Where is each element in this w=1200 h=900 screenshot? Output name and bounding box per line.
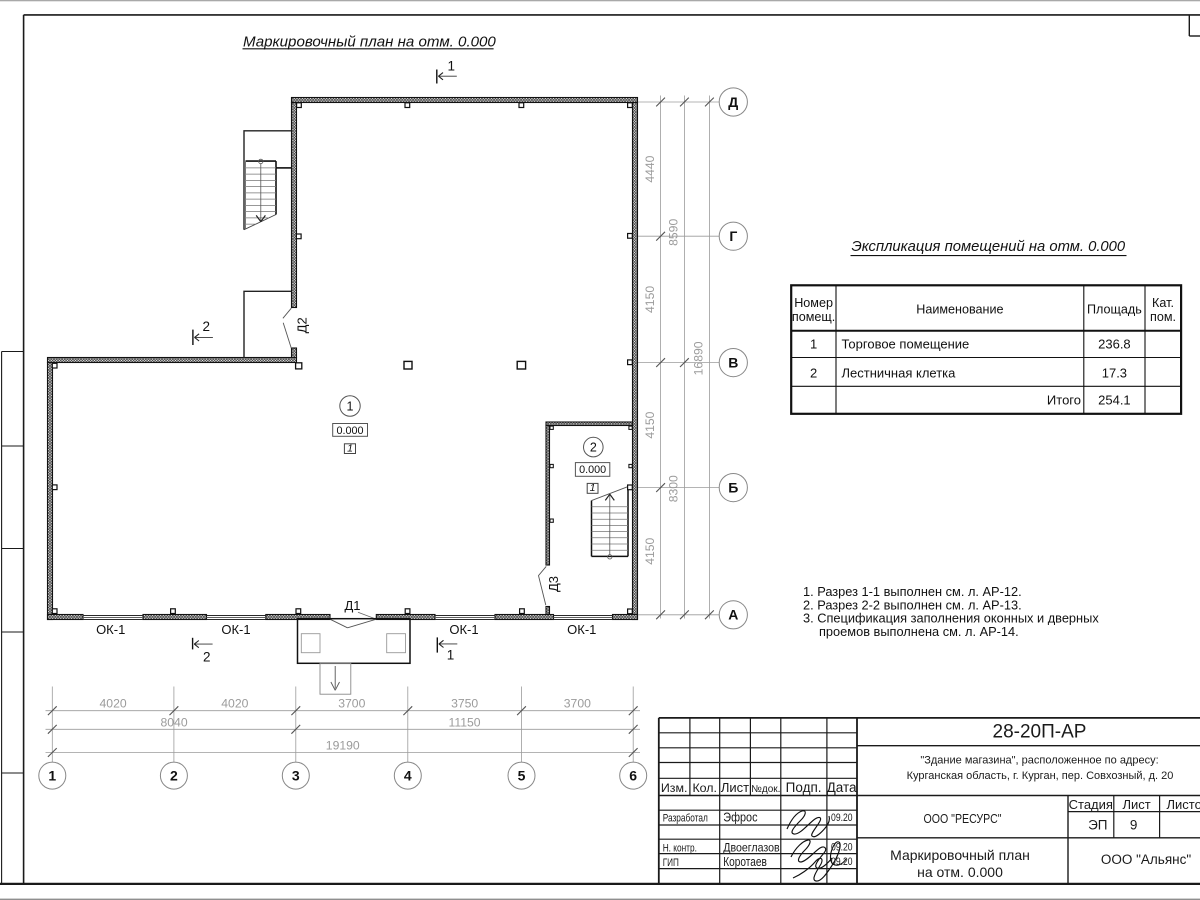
svg-text:Лист: Лист: [1122, 797, 1150, 812]
svg-text:Д2: Д2: [295, 317, 310, 333]
svg-text:Итого: Итого: [1047, 393, 1081, 408]
svg-text:ООО "РЕСУРС": ООО "РЕСУРС": [924, 811, 1002, 826]
svg-text:2: 2: [203, 650, 211, 665]
svg-text:№док.: №док.: [751, 784, 780, 795]
svg-text:1: 1: [810, 337, 817, 352]
svg-text:Двоеглазов: Двоеглазов: [723, 841, 780, 855]
svg-text:2: 2: [590, 441, 597, 455]
svg-text:Д: Д: [728, 94, 738, 110]
svg-text:Кат.: Кат.: [1152, 296, 1174, 310]
svg-text:2: 2: [810, 365, 817, 380]
svg-text:4150: 4150: [643, 411, 657, 438]
svg-text:254.1: 254.1: [1098, 393, 1131, 408]
svg-text:Курганская область, г. Курган,: Курганская область, г. Курган, пер. Совх…: [907, 770, 1174, 782]
svg-text:Д3: Д3: [546, 576, 561, 592]
svg-text:0.000: 0.000: [336, 425, 363, 437]
svg-text:Лист: Лист: [721, 780, 749, 795]
svg-text:Маркировочный план на отм. 0.0: Маркировочный план на отм. 0.000: [243, 34, 496, 51]
svg-text:пом.: пом.: [1150, 310, 1176, 324]
svg-text:ОК-1: ОК-1: [449, 622, 478, 637]
svg-text:8590: 8590: [667, 219, 681, 246]
svg-text:1: 1: [447, 648, 455, 663]
svg-text:на отм. 0.000: на отм. 0.000: [917, 864, 1003, 880]
svg-text:09.20: 09.20: [831, 812, 853, 824]
svg-text:Торговое помещение: Торговое помещение: [842, 337, 970, 352]
svg-text:8300: 8300: [667, 475, 681, 502]
svg-text:ЭП: ЭП: [1088, 817, 1107, 832]
svg-text:3: 3: [292, 767, 300, 783]
svg-text:1: 1: [48, 767, 56, 783]
svg-text:Дата: Дата: [827, 780, 857, 795]
svg-text:17.3: 17.3: [1102, 365, 1127, 380]
svg-text:проемов выполнена см. л. АР-14: проемов выполнена см. л. АР-14.: [819, 624, 1019, 639]
svg-text:Стадия: Стадия: [1069, 797, 1113, 812]
svg-text:Площадь: Площадь: [1087, 303, 1142, 317]
svg-text:19190: 19190: [326, 739, 360, 753]
svg-text:3700: 3700: [564, 697, 591, 711]
svg-text:6: 6: [629, 767, 637, 783]
svg-text:Кол.: Кол.: [692, 781, 717, 795]
svg-text:09.20: 09.20: [831, 842, 853, 854]
svg-text:4150: 4150: [643, 286, 657, 313]
svg-text:ОК-1: ОК-1: [221, 622, 250, 637]
svg-text:2: 2: [203, 319, 211, 334]
svg-text:3750: 3750: [451, 697, 478, 711]
svg-text:"Здание магазина", расположенн: "Здание магазина", расположенное по адре…: [920, 755, 1158, 767]
svg-text:Номер: Номер: [794, 296, 833, 310]
svg-text:4150: 4150: [643, 537, 657, 564]
svg-text:А: А: [728, 607, 738, 623]
svg-text:Коротаев: Коротаев: [723, 854, 767, 869]
svg-text:4020: 4020: [100, 697, 127, 711]
svg-text:Г: Г: [729, 228, 737, 244]
svg-text:Изм.: Изм.: [661, 781, 688, 795]
svg-text:Эфрос: Эфрос: [723, 810, 758, 825]
svg-text:Наименование: Наименование: [916, 303, 1003, 317]
svg-text:0.000: 0.000: [579, 464, 606, 476]
svg-text:1: 1: [448, 59, 456, 74]
svg-text:3700: 3700: [338, 697, 365, 711]
svg-text:9: 9: [1130, 817, 1138, 832]
svg-text:Лестничная клетка: Лестничная клетка: [842, 365, 957, 380]
svg-text:28-20П-АР: 28-20П-АР: [993, 722, 1087, 743]
svg-text:1: 1: [347, 400, 354, 414]
svg-text:помещ.: помещ.: [792, 310, 835, 324]
svg-text:Подп.: Подп.: [786, 780, 822, 795]
svg-text:1: 1: [590, 482, 596, 494]
svg-text:4: 4: [404, 767, 412, 783]
svg-text:Б: Б: [728, 480, 738, 496]
svg-text:ОК-1: ОК-1: [96, 622, 125, 637]
svg-text:8040: 8040: [160, 715, 187, 729]
svg-text:16890: 16890: [692, 341, 706, 375]
svg-text:11150: 11150: [448, 715, 480, 729]
svg-text:4020: 4020: [221, 697, 248, 711]
svg-text:В: В: [728, 355, 738, 371]
svg-text:ГИП: ГИП: [663, 857, 679, 869]
svg-text:Н. контр.: Н. контр.: [663, 843, 697, 855]
svg-text:ОК-1: ОК-1: [567, 622, 596, 637]
svg-text:Маркировочный план: Маркировочный план: [890, 847, 1030, 863]
svg-text:5: 5: [518, 767, 526, 783]
svg-text:Д1: Д1: [344, 598, 360, 613]
svg-text:Разработал: Разработал: [663, 813, 708, 825]
svg-text:1: 1: [347, 442, 353, 454]
svg-text:Экспликация помещений на отм.: Экспликация помещений на отм. 0.000: [851, 239, 1125, 255]
svg-text:4440: 4440: [643, 155, 657, 182]
svg-text:236.8: 236.8: [1098, 337, 1131, 352]
svg-text:ООО "Альянс": ООО "Альянс": [1101, 852, 1191, 867]
svg-text:Листов: Листов: [1167, 797, 1200, 812]
svg-text:2: 2: [170, 767, 178, 783]
